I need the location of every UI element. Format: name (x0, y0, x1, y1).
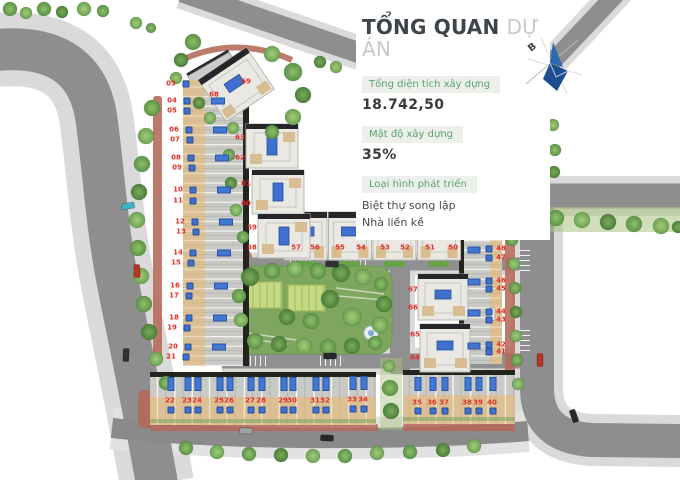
stat-development-type-values: Biệt thự song lập Nhà liền kề (362, 197, 550, 231)
stat-density: Mật độ xây dựng 35% (362, 122, 550, 163)
site-plan-page: 0304050607080910111213141516171819202122… (0, 0, 680, 480)
title-main: TỔNG QUAN (362, 15, 499, 39)
compass: B (522, 36, 586, 98)
stat-density-value: 35% (362, 147, 550, 163)
townhouse-row-bottom-right (403, 370, 515, 424)
development-type-line: Biệt thự song lập (362, 197, 550, 214)
townhouse-row-bottom (150, 372, 376, 425)
compass-north-label: B (526, 41, 539, 54)
villa-column-left (246, 124, 310, 258)
stat-total-area-label: Tổng diện tích xây dựng (362, 76, 500, 93)
development-type-line: Nhà liền kề (362, 214, 550, 231)
stat-development-type: Loại hình phát triển Biệt thự song lập N… (362, 172, 550, 231)
stat-density-label: Mật độ xây dựng (362, 126, 463, 143)
compass-icon: B (522, 36, 586, 98)
stat-development-type-label: Loại hình phát triển (362, 176, 477, 193)
overview-panel: TỔNG QUAN DỰ ÁN Tổng diện tích xây dựng … (356, 8, 550, 240)
stat-total-area-value: 18.742,50 (362, 97, 550, 113)
